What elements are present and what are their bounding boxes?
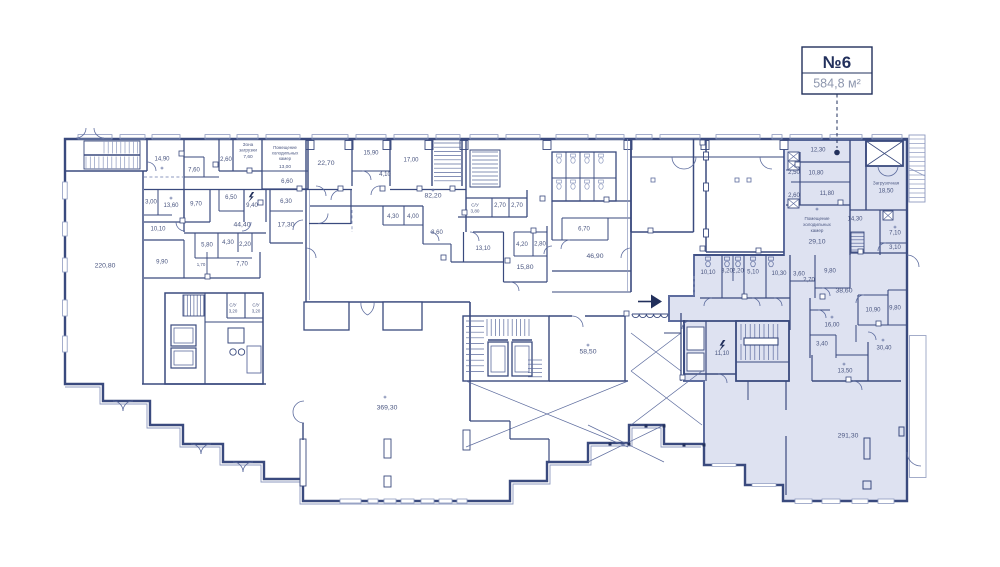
svg-text:Загрузочная: Загрузочная	[873, 181, 900, 186]
svg-text:220,80: 220,80	[95, 263, 116, 270]
svg-text:3,00: 3,00	[145, 200, 157, 206]
svg-text:44,40: 44,40	[233, 222, 250, 229]
svg-text:3,40: 3,40	[816, 342, 828, 348]
svg-text:14,90: 14,90	[154, 157, 170, 163]
svg-text:16,00: 16,00	[824, 323, 840, 329]
svg-text:58,50: 58,50	[579, 349, 596, 356]
svg-text:2,70: 2,70	[494, 203, 506, 209]
svg-text:7,10: 7,10	[889, 231, 901, 237]
svg-text:29,10: 29,10	[808, 239, 825, 246]
svg-text:13,50: 13,50	[837, 369, 853, 375]
svg-text:5,80: 5,80	[201, 243, 213, 249]
svg-text:7,60: 7,60	[243, 154, 253, 160]
svg-text:Помещение: Помещение	[805, 216, 830, 221]
svg-text:17,00: 17,00	[403, 158, 419, 164]
svg-text:13,60: 13,60	[163, 203, 179, 209]
svg-text:14,30: 14,30	[847, 217, 863, 223]
svg-text:12,30: 12,30	[810, 148, 826, 154]
svg-text:3,10: 3,10	[889, 245, 901, 251]
svg-text:10,80: 10,80	[808, 171, 824, 177]
svg-text:№6: №6	[823, 53, 851, 72]
svg-text:4,30: 4,30	[222, 240, 234, 246]
svg-text:7,70: 7,70	[236, 262, 248, 268]
svg-text:5,10: 5,10	[747, 270, 759, 276]
svg-text:38,60: 38,60	[835, 288, 852, 295]
svg-text:11,10: 11,10	[715, 351, 730, 357]
svg-text:2,70: 2,70	[803, 278, 815, 284]
svg-text:6,30: 6,30	[280, 199, 292, 205]
svg-text:13,10: 13,10	[475, 246, 491, 252]
svg-text:584,8 м²: 584,8 м²	[813, 77, 861, 91]
svg-text:С/У: С/У	[471, 203, 479, 208]
svg-text:2,70: 2,70	[511, 203, 523, 209]
svg-text:6,70: 6,70	[578, 227, 590, 233]
svg-text:6,50: 6,50	[225, 195, 237, 201]
svg-text:3,20: 3,20	[252, 309, 261, 314]
svg-text:7,60: 7,60	[188, 168, 200, 174]
svg-text:2,60: 2,60	[220, 157, 232, 163]
svg-text:камер: камер	[811, 228, 824, 233]
svg-text:3,20: 3,20	[229, 309, 238, 314]
svg-text:13,00: 13,00	[279, 164, 291, 170]
svg-text:369,30: 369,30	[377, 405, 398, 412]
svg-text:82,20: 82,20	[424, 193, 441, 200]
svg-text:10,30: 10,30	[771, 271, 787, 277]
svg-text:Зона: Зона	[243, 142, 254, 147]
svg-text:2,20: 2,20	[239, 242, 251, 248]
svg-text:С/У: С/У	[229, 303, 236, 308]
svg-text:9,40: 9,40	[246, 203, 258, 209]
svg-text:18,50: 18,50	[878, 189, 894, 195]
svg-text:9,70: 9,70	[190, 202, 202, 208]
svg-text:4,00: 4,00	[407, 214, 419, 220]
svg-text:10,90: 10,90	[865, 308, 881, 314]
svg-text:3,80: 3,80	[471, 209, 480, 214]
svg-text:2,80: 2,80	[534, 242, 546, 248]
svg-text:15,90: 15,90	[363, 151, 379, 157]
svg-text:холодильных: холодильных	[803, 222, 832, 227]
svg-text:9,80: 9,80	[824, 269, 836, 275]
svg-text:6,60: 6,60	[281, 179, 293, 185]
svg-text:4,30: 4,30	[387, 214, 399, 220]
svg-text:8,60: 8,60	[431, 230, 443, 236]
svg-text:11,80: 11,80	[820, 191, 835, 197]
svg-text:291,30: 291,30	[838, 433, 859, 440]
svg-text:Помещение: Помещение	[273, 145, 297, 150]
svg-text:15,80: 15,80	[516, 264, 533, 271]
svg-text:9,90: 9,90	[156, 260, 168, 266]
svg-text:2,20: 2,20	[732, 269, 744, 275]
svg-text:2,50: 2,50	[788, 170, 800, 176]
svg-text:холодильных: холодильных	[272, 151, 299, 156]
svg-text:17,30: 17,30	[277, 222, 294, 229]
svg-text:загрузки: загрузки	[239, 148, 257, 153]
svg-text:камер: камер	[279, 156, 292, 161]
svg-text:1,70: 1,70	[197, 262, 206, 267]
svg-text:9,80: 9,80	[889, 306, 901, 312]
svg-text:22,70: 22,70	[317, 160, 334, 167]
svg-text:С/У: С/У	[252, 303, 259, 308]
svg-text:10,10: 10,10	[700, 270, 716, 276]
svg-text:2,60: 2,60	[788, 193, 800, 199]
svg-text:46,90: 46,90	[586, 253, 603, 260]
svg-text:4,20: 4,20	[516, 242, 528, 248]
svg-text:30,40: 30,40	[876, 346, 892, 352]
svg-text:4,10: 4,10	[379, 172, 391, 178]
svg-text:10,10: 10,10	[150, 227, 166, 233]
